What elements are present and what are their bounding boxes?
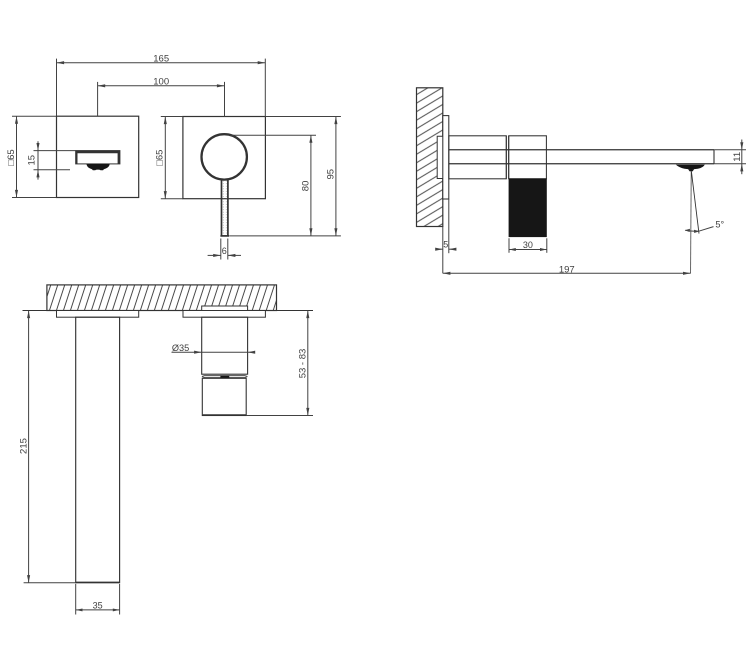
svg-text:30: 30: [523, 240, 533, 250]
svg-text:Ø35: Ø35: [172, 343, 189, 353]
svg-text:6: 6: [222, 246, 227, 256]
svg-text:5°: 5°: [715, 220, 724, 230]
svg-text:5: 5: [443, 239, 448, 249]
svg-text:35: 35: [93, 601, 103, 611]
svg-text:15: 15: [27, 155, 38, 166]
svg-text:215: 215: [18, 438, 29, 454]
svg-text:80: 80: [301, 181, 312, 192]
svg-text:□65: □65: [6, 149, 17, 165]
svg-text:53 - 83: 53 - 83: [297, 349, 308, 379]
svg-text:□65: □65: [154, 150, 165, 166]
svg-text:95: 95: [326, 169, 337, 180]
svg-text:197: 197: [559, 264, 575, 275]
svg-text:165: 165: [153, 53, 169, 64]
svg-text:11: 11: [732, 152, 743, 162]
svg-text:100: 100: [153, 77, 169, 88]
